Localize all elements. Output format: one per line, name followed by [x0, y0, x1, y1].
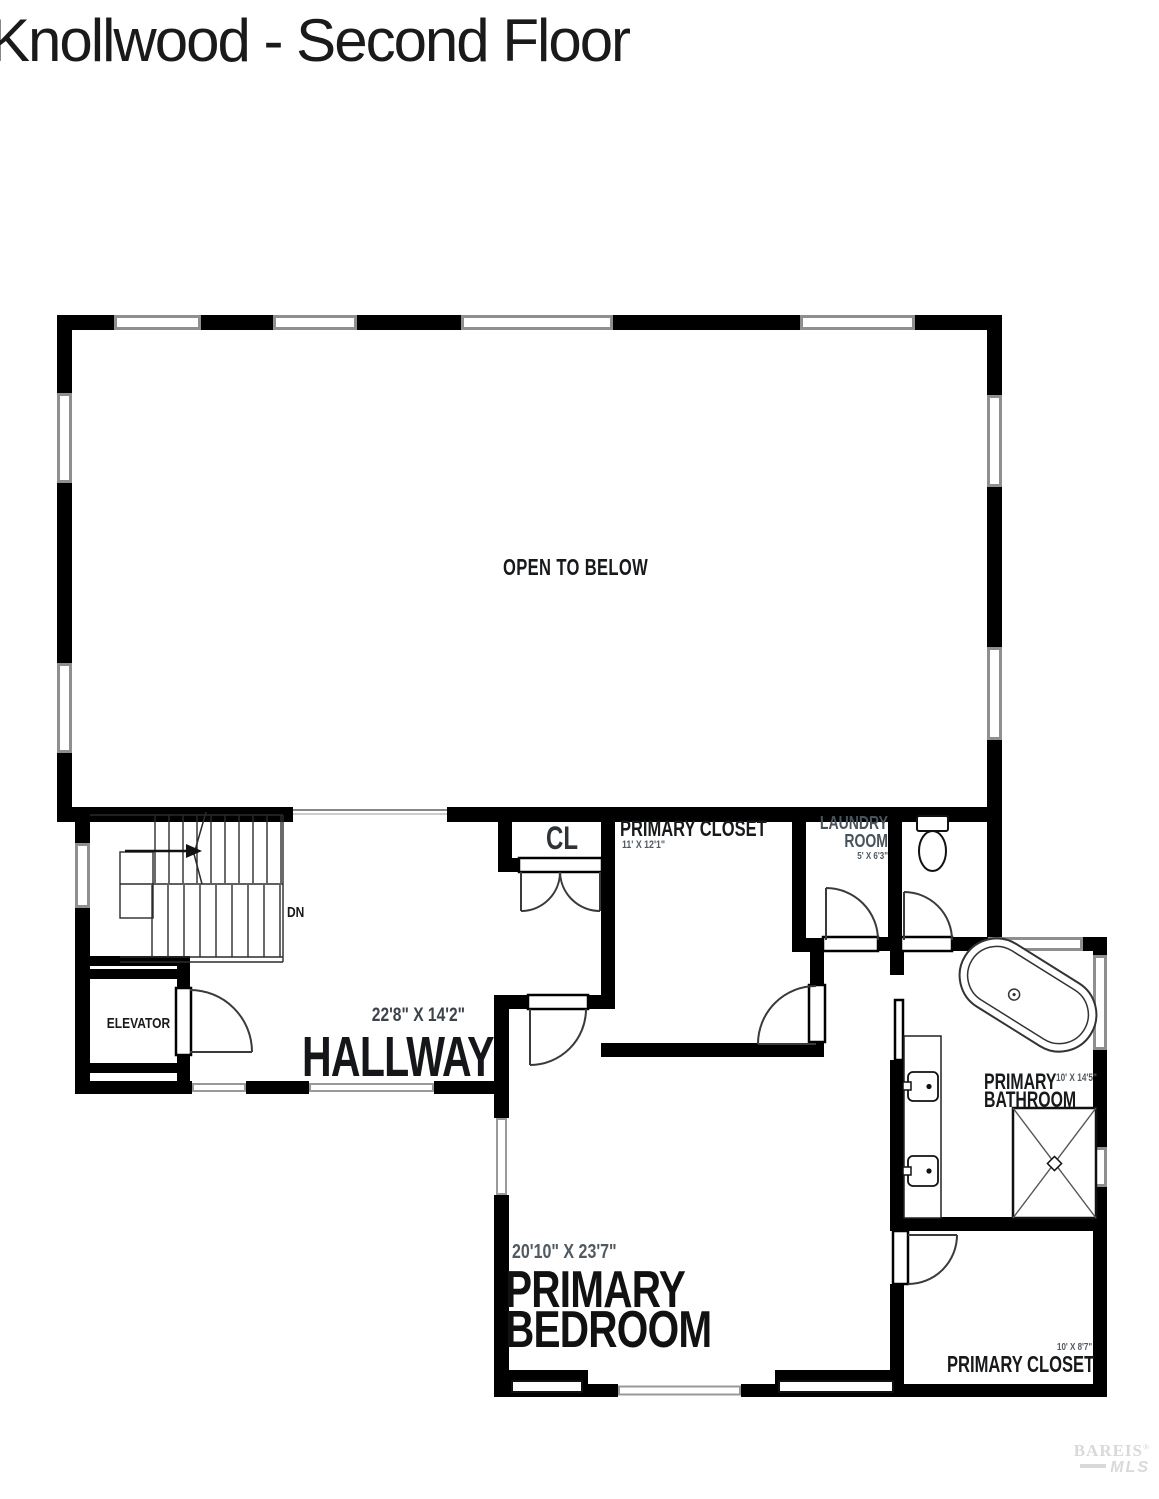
room-label-laundry-line1: LAUNDRY [819, 814, 888, 832]
room-label-open-to-below: OPEN TO BELOW [503, 556, 648, 579]
toilet-fixture [917, 816, 948, 871]
watermark-bareis: BAREIS [1074, 1441, 1143, 1460]
primary-closet-door [758, 986, 816, 1044]
room-label-primary-closet-lower: PRIMARY CLOSET [947, 1353, 1094, 1376]
bedroom-door [530, 1009, 586, 1065]
room-label-primary-closet-upper: PRIMARY CLOSET [620, 818, 767, 840]
room-dimensions-primary-closet-upper: 11' X 12'1" [622, 840, 665, 851]
pocket-door [895, 1000, 903, 1060]
room-dimensions-hallway: 22'8" X 14'2" [367, 1006, 465, 1025]
laundry-door [826, 888, 878, 940]
staircase [90, 815, 283, 962]
toilet-room-door [904, 892, 952, 940]
door-jambs [176, 858, 952, 1284]
lower-closet-door [908, 1235, 957, 1284]
page-title: Knollwood - Second Floor [0, 6, 629, 75]
watermark-bar [1080, 1464, 1106, 1468]
bareis-mls-watermark: BAREIS® MLS [1058, 1442, 1150, 1477]
room-label-elevator: ELEVATOR [107, 1016, 161, 1031]
room-dimensions-primary-bedroom: 20'10" X 23'7" [512, 1242, 617, 1262]
window [779, 1381, 893, 1392]
sink [903, 1156, 938, 1186]
room-label-laundry-line2: ROOM [819, 832, 888, 850]
registered-mark: ® [1143, 1442, 1150, 1451]
elevator-door [190, 990, 252, 1052]
room-dimensions-primary-closet-lower: 10' X 8'7" [1057, 1343, 1092, 1353]
room-label-primary-bedroom-line2: BEDROOM [505, 1304, 711, 1356]
stair-direction-arrow [125, 812, 206, 884]
cl-door-right [560, 872, 600, 911]
sink [903, 1072, 938, 1101]
window [512, 1381, 582, 1392]
watermark-mls: MLS [1110, 1459, 1150, 1476]
cl-door-left [521, 872, 560, 911]
room-label-cl-closet: CL [546, 822, 578, 854]
stair-direction-label: DN [287, 905, 304, 920]
room-dimensions-primary-bathroom: 10' X 14'5" [1056, 1073, 1097, 1084]
room-label-hallway: HALLWAY [302, 1029, 494, 1086]
shower-fixture [1013, 1108, 1096, 1218]
room-label-primary-bathroom-line2: BATHROOM [984, 1089, 1076, 1111]
vanity-fixture [903, 1036, 941, 1218]
floor-plan-page: Knollwood - Second Floor OPEN TO BELOW C… [0, 0, 1159, 1499]
room-dimensions-laundry: 5' X 6'3" [816, 852, 888, 862]
